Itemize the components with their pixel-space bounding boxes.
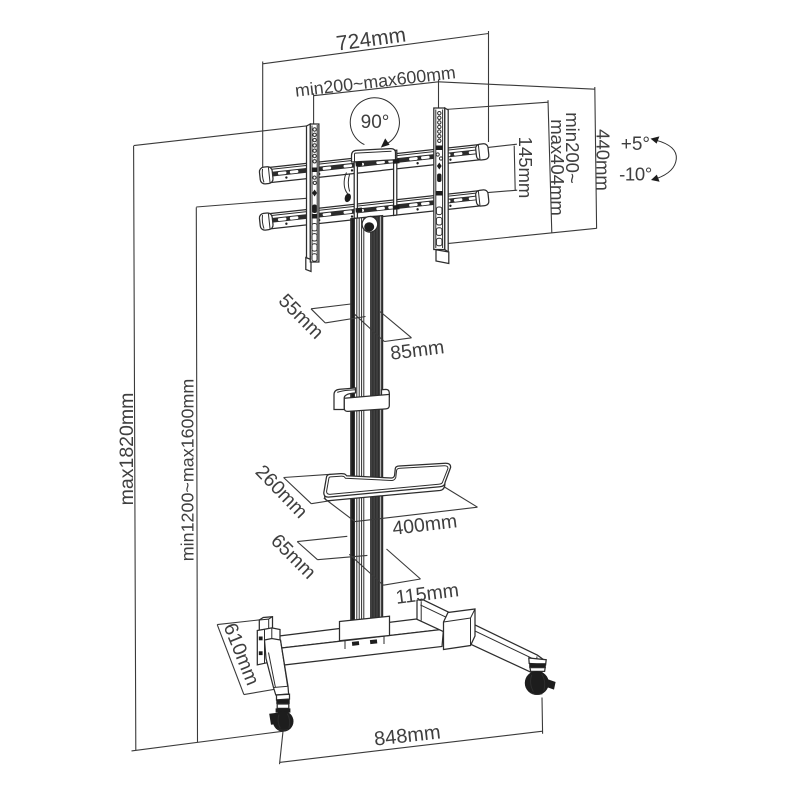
svg-text:145mm: 145mm xyxy=(515,137,536,199)
svg-text:440mm: 440mm xyxy=(593,129,614,191)
svg-text:max1820mm: max1820mm xyxy=(116,393,138,506)
svg-text:90°: 90° xyxy=(361,112,390,133)
svg-text:-10°: -10° xyxy=(619,164,652,185)
svg-text:max404mm: max404mm xyxy=(547,119,568,216)
svg-text:min1200~max1600mm: min1200~max1600mm xyxy=(178,379,198,561)
svg-text:+5°: +5° xyxy=(621,134,650,155)
